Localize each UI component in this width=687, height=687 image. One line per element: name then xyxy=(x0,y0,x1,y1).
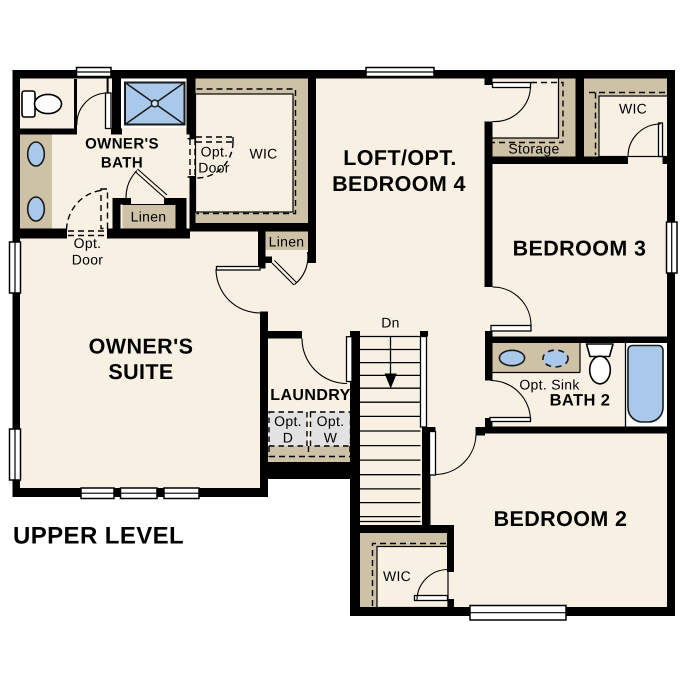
svg-text:W: W xyxy=(324,430,338,446)
svg-text:WIC: WIC xyxy=(383,568,411,584)
svg-text:Dn: Dn xyxy=(381,315,400,331)
svg-text:Opt.: Opt. xyxy=(201,144,229,160)
svg-text:BEDROOM 3: BEDROOM 3 xyxy=(513,237,647,261)
svg-text:UPPER LEVEL: UPPER LEVEL xyxy=(13,523,184,550)
svg-text:Linen: Linen xyxy=(131,209,167,225)
svg-text:LOFT/OPT.: LOFT/OPT. xyxy=(343,146,456,170)
svg-text:BEDROOM 2: BEDROOM 2 xyxy=(494,507,628,531)
svg-text:WIC: WIC xyxy=(249,146,277,162)
svg-text:Door: Door xyxy=(198,160,230,176)
svg-text:BATH: BATH xyxy=(101,155,143,172)
svg-text:Door: Door xyxy=(72,252,104,268)
svg-text:Storage: Storage xyxy=(508,141,559,157)
svg-text:LAUNDRY: LAUNDRY xyxy=(270,387,350,404)
svg-text:Opt.: Opt. xyxy=(317,413,345,429)
svg-text:SUITE: SUITE xyxy=(108,360,173,384)
svg-text:BEDROOM 4: BEDROOM 4 xyxy=(332,172,466,196)
svg-text:OWNER'S: OWNER'S xyxy=(85,136,159,153)
svg-text:Opt.: Opt. xyxy=(274,413,302,429)
svg-text:D: D xyxy=(283,430,293,446)
svg-text:WIC: WIC xyxy=(619,101,647,117)
svg-text:Linen: Linen xyxy=(269,234,305,250)
svg-text:BATH 2: BATH 2 xyxy=(550,392,611,410)
svg-text:OWNER'S: OWNER'S xyxy=(89,335,194,359)
svg-text:Opt.: Opt. xyxy=(74,235,102,251)
svg-text:Opt. Sink: Opt. Sink xyxy=(519,377,580,393)
